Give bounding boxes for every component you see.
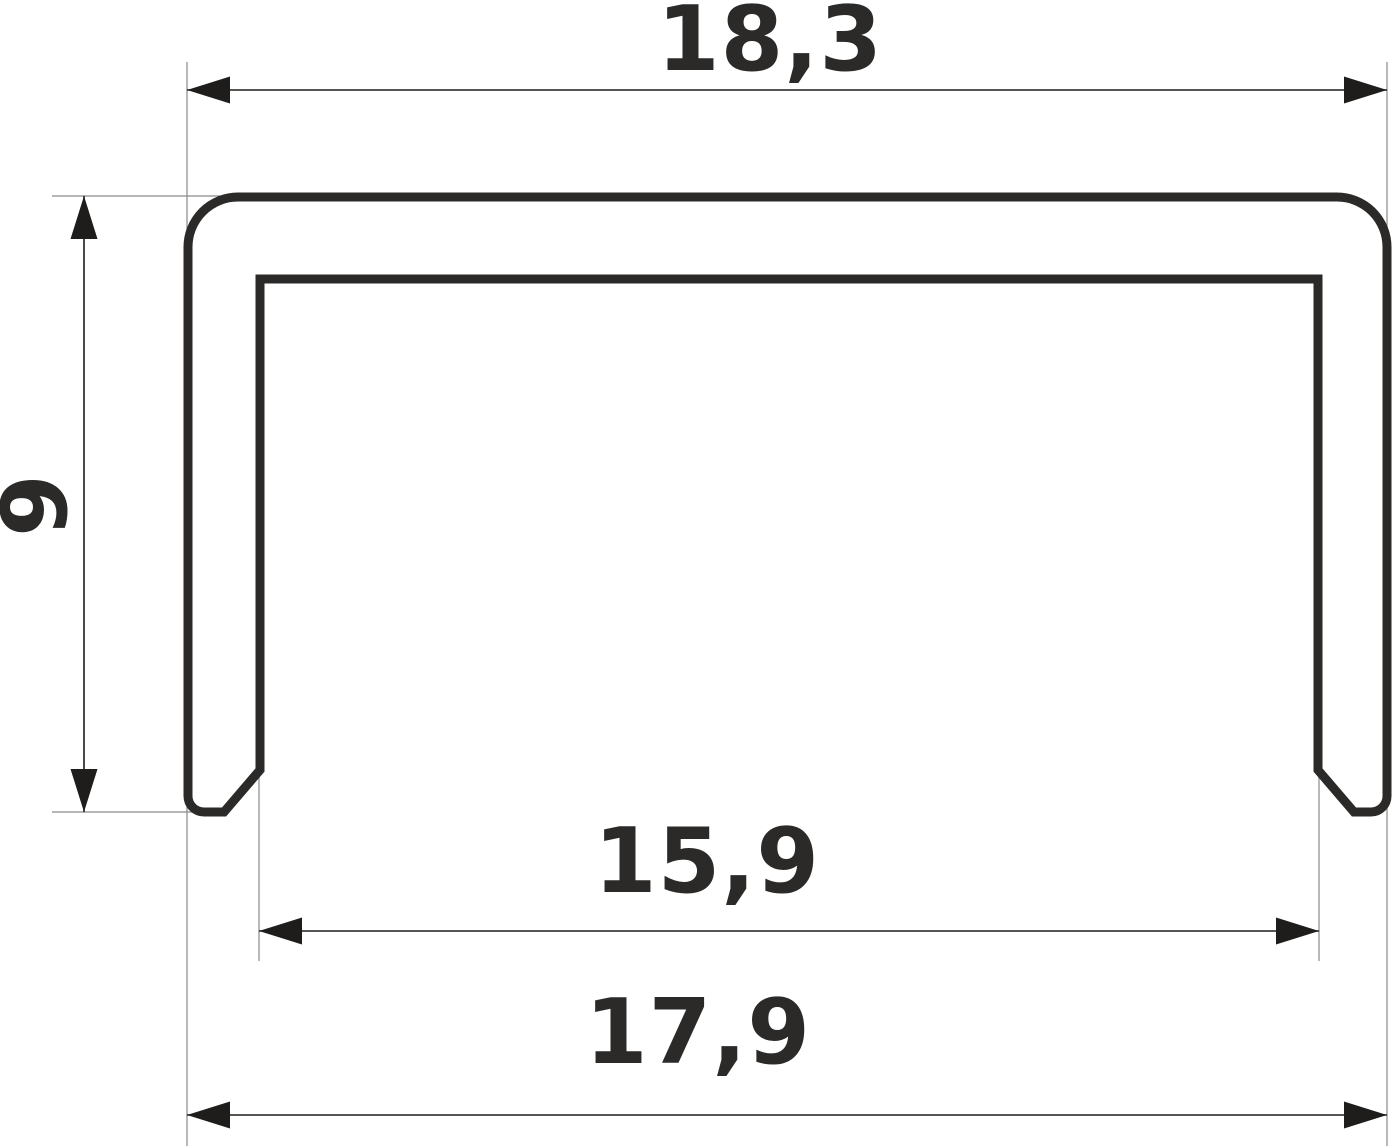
dimension-label-height: 9 bbox=[0, 473, 88, 537]
dimension-top-width: 18,3 bbox=[187, 0, 1387, 92]
dimension-inner-width: 15,9 bbox=[259, 809, 1319, 931]
dimension-label-inner-width: 15,9 bbox=[594, 809, 820, 914]
dimension-label-top-width: 18,3 bbox=[657, 0, 883, 92]
drawing-canvas: 18,3 9 15,9 17,9 bbox=[0, 0, 1392, 1147]
technical-drawing: 18,3 9 15,9 17,9 bbox=[0, 0, 1392, 1147]
dimension-label-bottom-width: 17,9 bbox=[585, 980, 811, 1085]
dimension-height: 9 bbox=[0, 196, 88, 812]
dimension-bottom-width: 17,9 bbox=[187, 980, 1387, 1115]
profile-outline bbox=[188, 197, 1387, 812]
